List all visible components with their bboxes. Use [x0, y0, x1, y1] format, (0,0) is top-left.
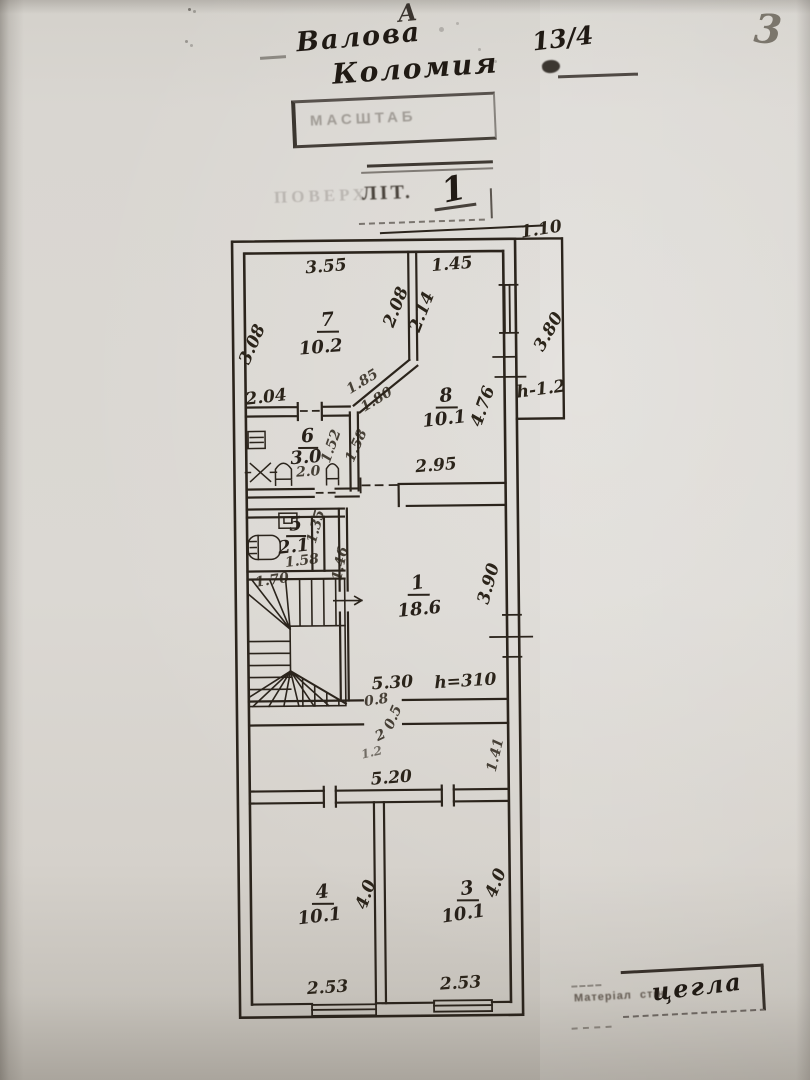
room-area: 10.1	[297, 903, 343, 929]
dim-label: 5.30	[371, 672, 414, 695]
dim-label: 2.95	[414, 454, 458, 477]
stair-direction-arrow	[334, 596, 362, 604]
dim-label: 4.76	[467, 383, 500, 429]
room-number: 3	[459, 877, 475, 901]
room-area: 18.6	[397, 597, 443, 622]
dim-label: 1.41	[484, 737, 507, 774]
room-number: 6	[300, 424, 315, 447]
dim-label: 3.90	[474, 561, 504, 606]
staircase	[248, 578, 363, 706]
floor-plan-drawing: 7 10.2 8 10.1 6 3.0 5 2.1 1 18.6 4 10.1 …	[0, 0, 810, 1080]
dim-label: h=310	[434, 669, 497, 693]
room-area: 10.1	[421, 406, 467, 432]
dim-label: 0.8	[363, 691, 390, 711]
dim-label: 0.5	[381, 703, 405, 732]
toilet-icon	[326, 464, 338, 485]
material-value-handwritten: цегла	[650, 967, 744, 1007]
room-area: 10.2	[298, 335, 343, 359]
toilet-icon	[275, 463, 291, 485]
dim-label: 3.08	[235, 321, 270, 367]
dim-label: 4.0	[352, 877, 381, 912]
sink-cross-icon	[245, 463, 276, 481]
dim-label: 3.55	[305, 255, 348, 278]
dim-label: 5.20	[370, 766, 413, 789]
material-stamp-box: цегла	[621, 964, 766, 1018]
room-number: 8	[437, 384, 454, 407]
room-number: 4	[314, 880, 330, 903]
dim-label: 1.2	[360, 743, 383, 761]
dim-label: 1.45	[430, 253, 473, 276]
dim-label: 1.58	[342, 427, 370, 465]
stamp-dash	[571, 984, 601, 988]
room-number: 5	[288, 512, 304, 535]
stamp-dash	[572, 1026, 612, 1030]
dim-label: 2.0	[295, 463, 322, 481]
dim-label: 2.53	[438, 972, 482, 995]
dim-label: 2.53	[305, 976, 349, 999]
dim-label: 1.58	[284, 551, 320, 571]
dim-label: 1.70	[254, 570, 290, 591]
dim-label: h-1.2	[515, 376, 566, 402]
material-stamp: Матеріал стін цегла	[568, 954, 791, 1035]
dim-label: 1.52	[318, 427, 345, 465]
room-number: 1	[410, 571, 426, 595]
boiler-icon	[248, 431, 265, 448]
room-area: 10.1	[440, 900, 486, 927]
dim-label: 2	[372, 726, 389, 745]
room-number: 7	[320, 308, 335, 331]
dim-label: 4.0	[481, 866, 510, 901]
scanned-floor-plan-page: { "page": { "number": "3", "annotation_a…	[0, 0, 810, 1080]
